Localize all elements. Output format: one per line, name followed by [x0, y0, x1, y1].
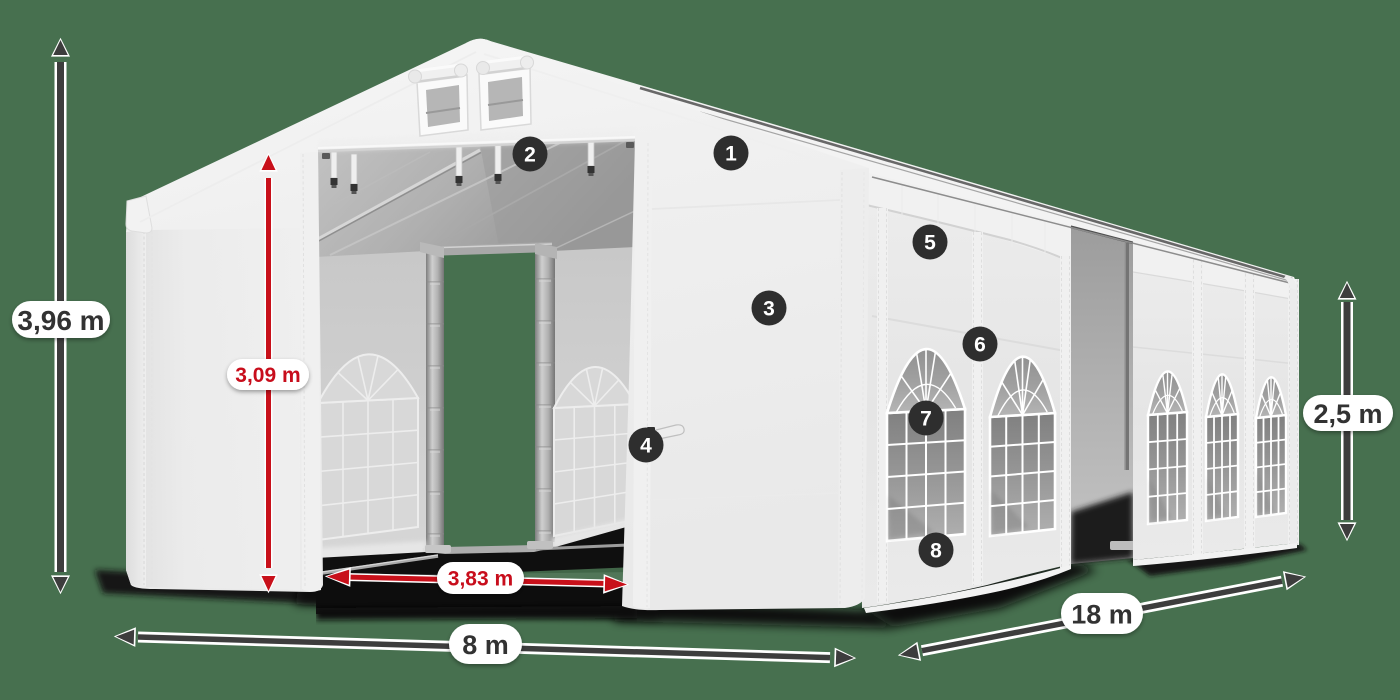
svg-text:18 m: 18 m: [1071, 600, 1133, 630]
svg-text:8: 8: [930, 540, 942, 563]
svg-text:6: 6: [974, 334, 986, 357]
svg-text:2: 2: [524, 144, 536, 167]
svg-text:2,5 m: 2,5 m: [1313, 399, 1382, 429]
svg-text:3,83 m: 3,83 m: [448, 568, 513, 591]
svg-text:7: 7: [920, 408, 932, 431]
svg-text:1: 1: [725, 143, 737, 166]
svg-text:4: 4: [640, 435, 652, 458]
svg-text:8 m: 8 m: [462, 630, 509, 660]
svg-text:3,96 m: 3,96 m: [17, 305, 104, 336]
svg-text:3,09 m: 3,09 m: [235, 364, 300, 387]
svg-text:3: 3: [763, 298, 775, 321]
svg-text:5: 5: [924, 232, 936, 255]
